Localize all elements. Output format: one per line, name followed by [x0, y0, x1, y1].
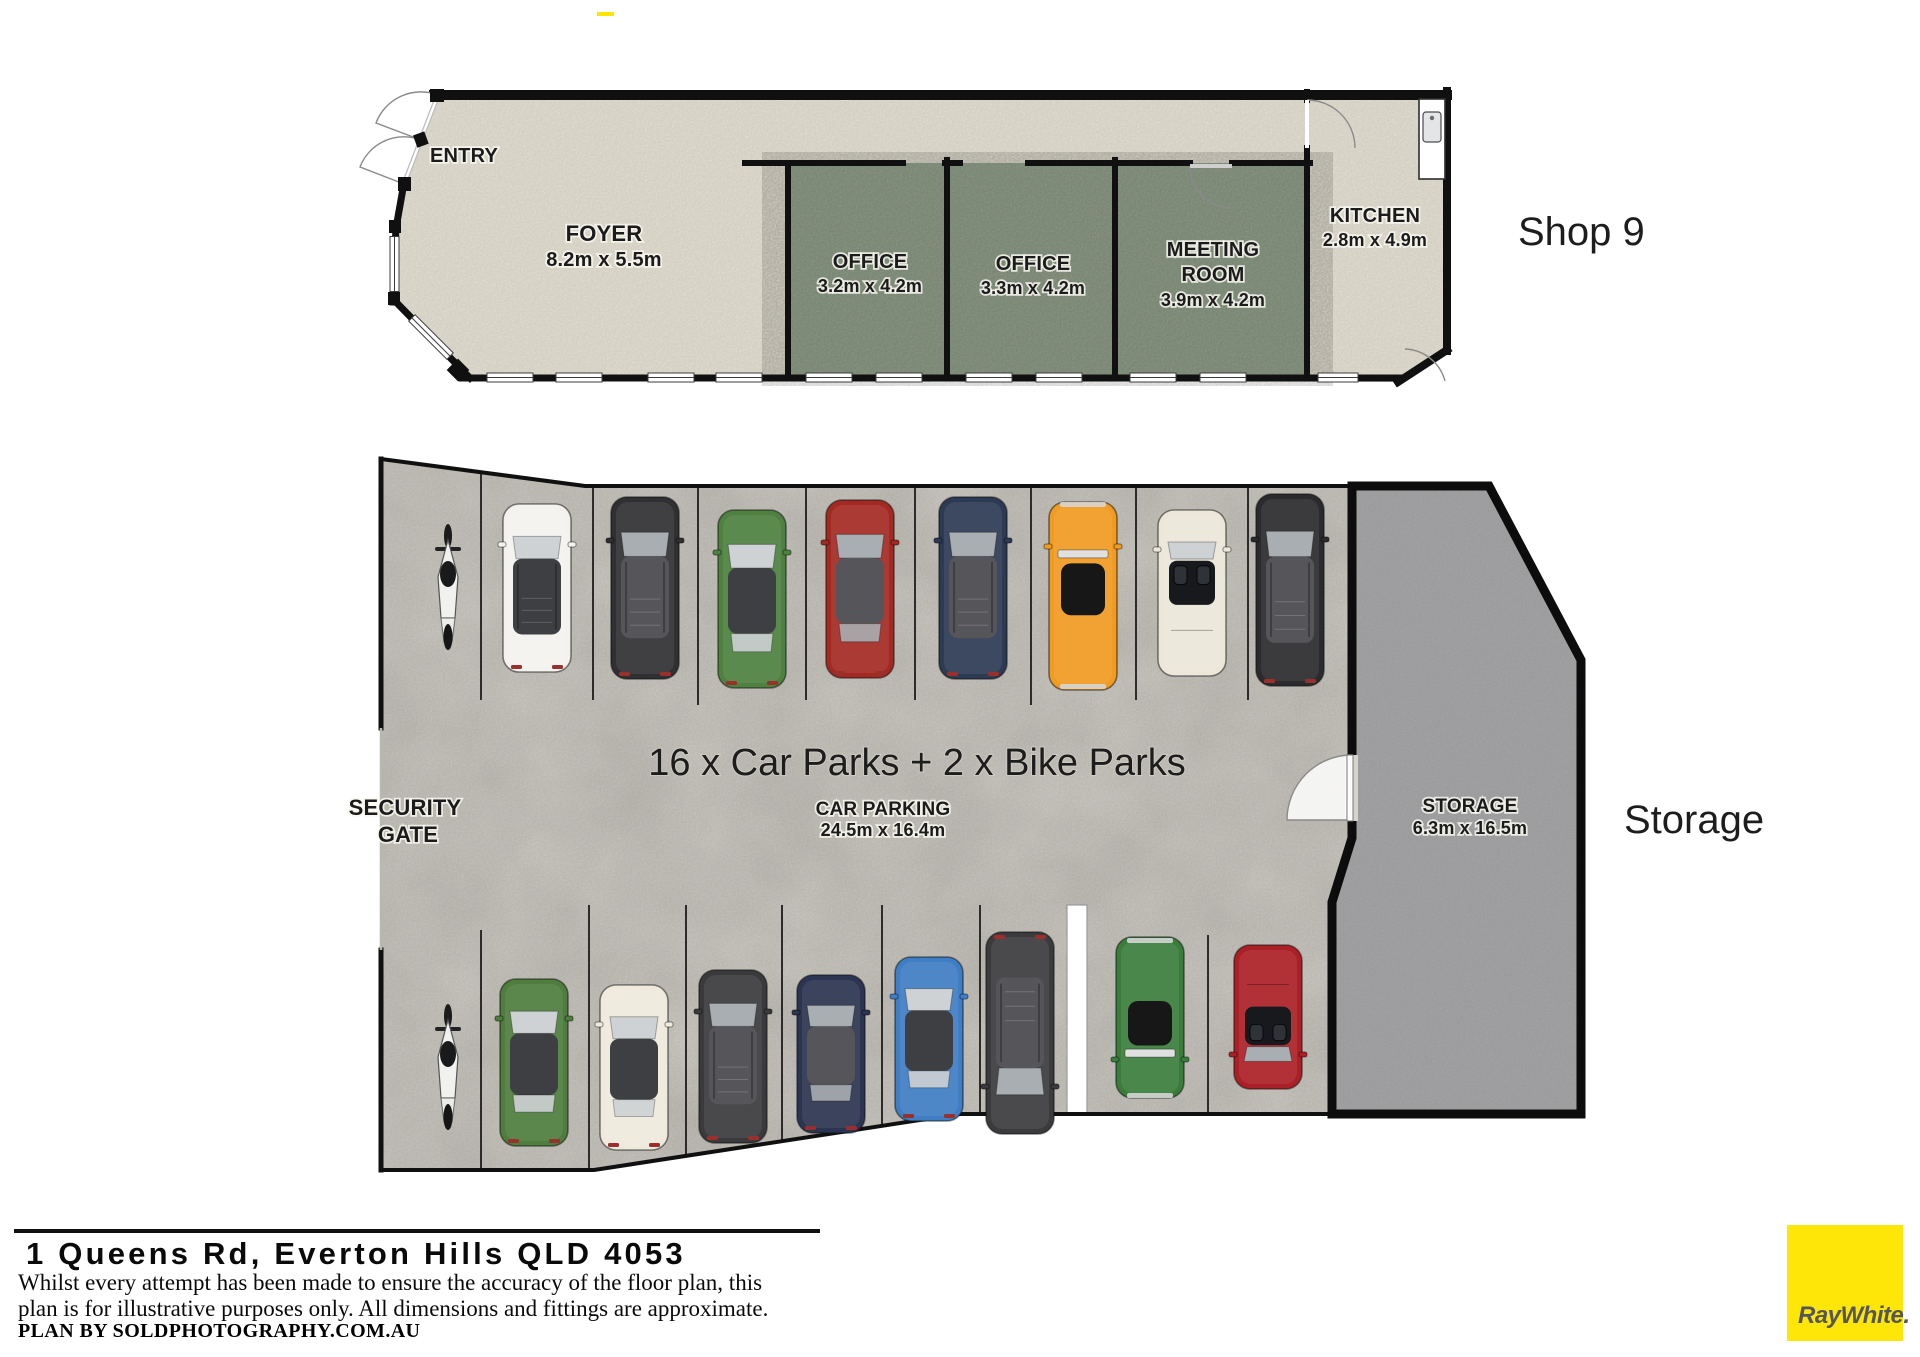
car-parking-label: CAR PARKING — [816, 799, 951, 820]
plan-credit: PLAN BY SOLDPHOTOGRAPHY.COM.AU — [18, 1320, 420, 1343]
floorplan-drawing: ENTRY FOYER 8.2m x 5.5m OFFICE 3.2m x 4.… — [0, 0, 1920, 1357]
car-navy-sedan — [792, 975, 870, 1133]
office1-label: OFFICE — [833, 251, 908, 273]
car-red-car — [821, 500, 899, 678]
security-gate-label-1: SECURITY — [349, 795, 462, 820]
meeting-room-dims: 3.9m x 4.2m — [1161, 290, 1265, 310]
foyer-label: FOYER — [566, 221, 643, 246]
storage-label: STORAGE — [1422, 796, 1517, 817]
shop9-floorplan: ENTRY FOYER 8.2m x 5.5m OFFICE 3.2m x 4.… — [360, 85, 1470, 395]
kitchen-dims: 2.8m x 4.9m — [1323, 230, 1427, 250]
shop9-side-label: Shop 9 — [1518, 210, 1645, 255]
car-navy-suv — [934, 497, 1012, 679]
car-green-wagon — [495, 979, 573, 1146]
car-parking-dims: 24.5m x 16.4m — [821, 820, 946, 840]
security-gate-label-2: GATE — [378, 822, 438, 847]
carpark-headline: 16 x Car Parks + 2 x Bike Parks — [648, 742, 1185, 784]
office2-dims: 3.3m x 4.2m — [981, 278, 1085, 298]
car-blue-sedan — [890, 957, 968, 1121]
kitchen-sink — [1419, 99, 1445, 179]
car-green-car — [713, 510, 791, 688]
storage-side-label: Storage — [1624, 798, 1764, 843]
footer-divider-line — [14, 1229, 820, 1233]
car-dark-grey-suv — [694, 970, 772, 1143]
office2-label: OFFICE — [996, 253, 1071, 275]
car-black-suv — [606, 497, 684, 679]
property-address: 1 Queens Rd, Everton Hills QLD 4053 — [26, 1236, 686, 1272]
storage-dims: 6.3m x 16.5m — [1413, 818, 1527, 838]
entry-label: ENTRY — [430, 145, 499, 167]
raywhite-logo: RayWhite. — [1787, 1225, 1903, 1341]
car-black-suv-2 — [1251, 494, 1329, 686]
car-black-suv-3 — [981, 932, 1059, 1134]
disclaimer-line-2: plan is for illustrative purposes only. … — [18, 1296, 768, 1322]
floorplan-page: ENTRY FOYER 8.2m x 5.5m OFFICE 3.2m x 4.… — [0, 0, 1920, 1357]
foyer-dims: 8.2m x 5.5m — [546, 249, 662, 271]
raywhite-logo-text: RayWhite. — [1798, 1302, 1910, 1330]
office1-dims: 3.2m x 4.2m — [818, 276, 922, 296]
meeting-room-label-1: MEETING — [1167, 239, 1260, 261]
car-red-convertible — [1229, 945, 1307, 1089]
carpark-floorplan: STORAGE 6.3m x 16.5m — [349, 450, 1600, 1180]
car-white-sedan — [595, 985, 673, 1150]
car-white-suv — [498, 504, 576, 672]
kitchen-label: KITCHEN — [1330, 205, 1420, 227]
divider-wall-strip — [1067, 905, 1087, 1114]
car-orange-classic-car — [1044, 502, 1122, 690]
disclaimer-line-1: Whilst every attempt has been made to en… — [18, 1270, 762, 1296]
car-green-classic-car — [1111, 937, 1189, 1098]
car-cream-convertible — [1153, 510, 1231, 676]
meeting-room-label-2: ROOM — [1181, 264, 1244, 286]
